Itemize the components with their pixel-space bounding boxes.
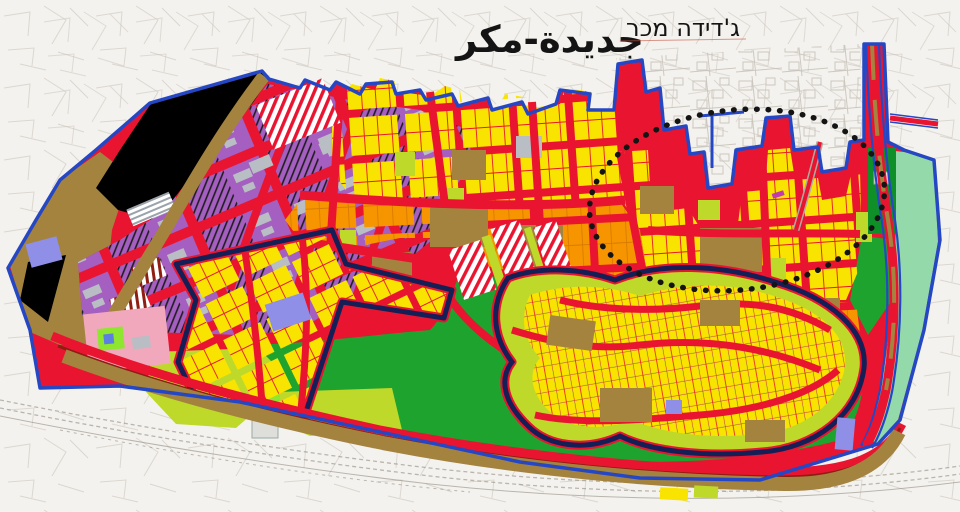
zoning-map: جديدة-مكر ג'דידה מכר [0, 0, 960, 512]
title-arabic: جديدة-مكر [454, 18, 644, 61]
zoning-map-page: جديدة-مكر ג'דידה מכר [0, 0, 960, 512]
neighborhood-curvy-se [496, 267, 865, 454]
title-hebrew: ג'דידה מכר [626, 14, 740, 42]
